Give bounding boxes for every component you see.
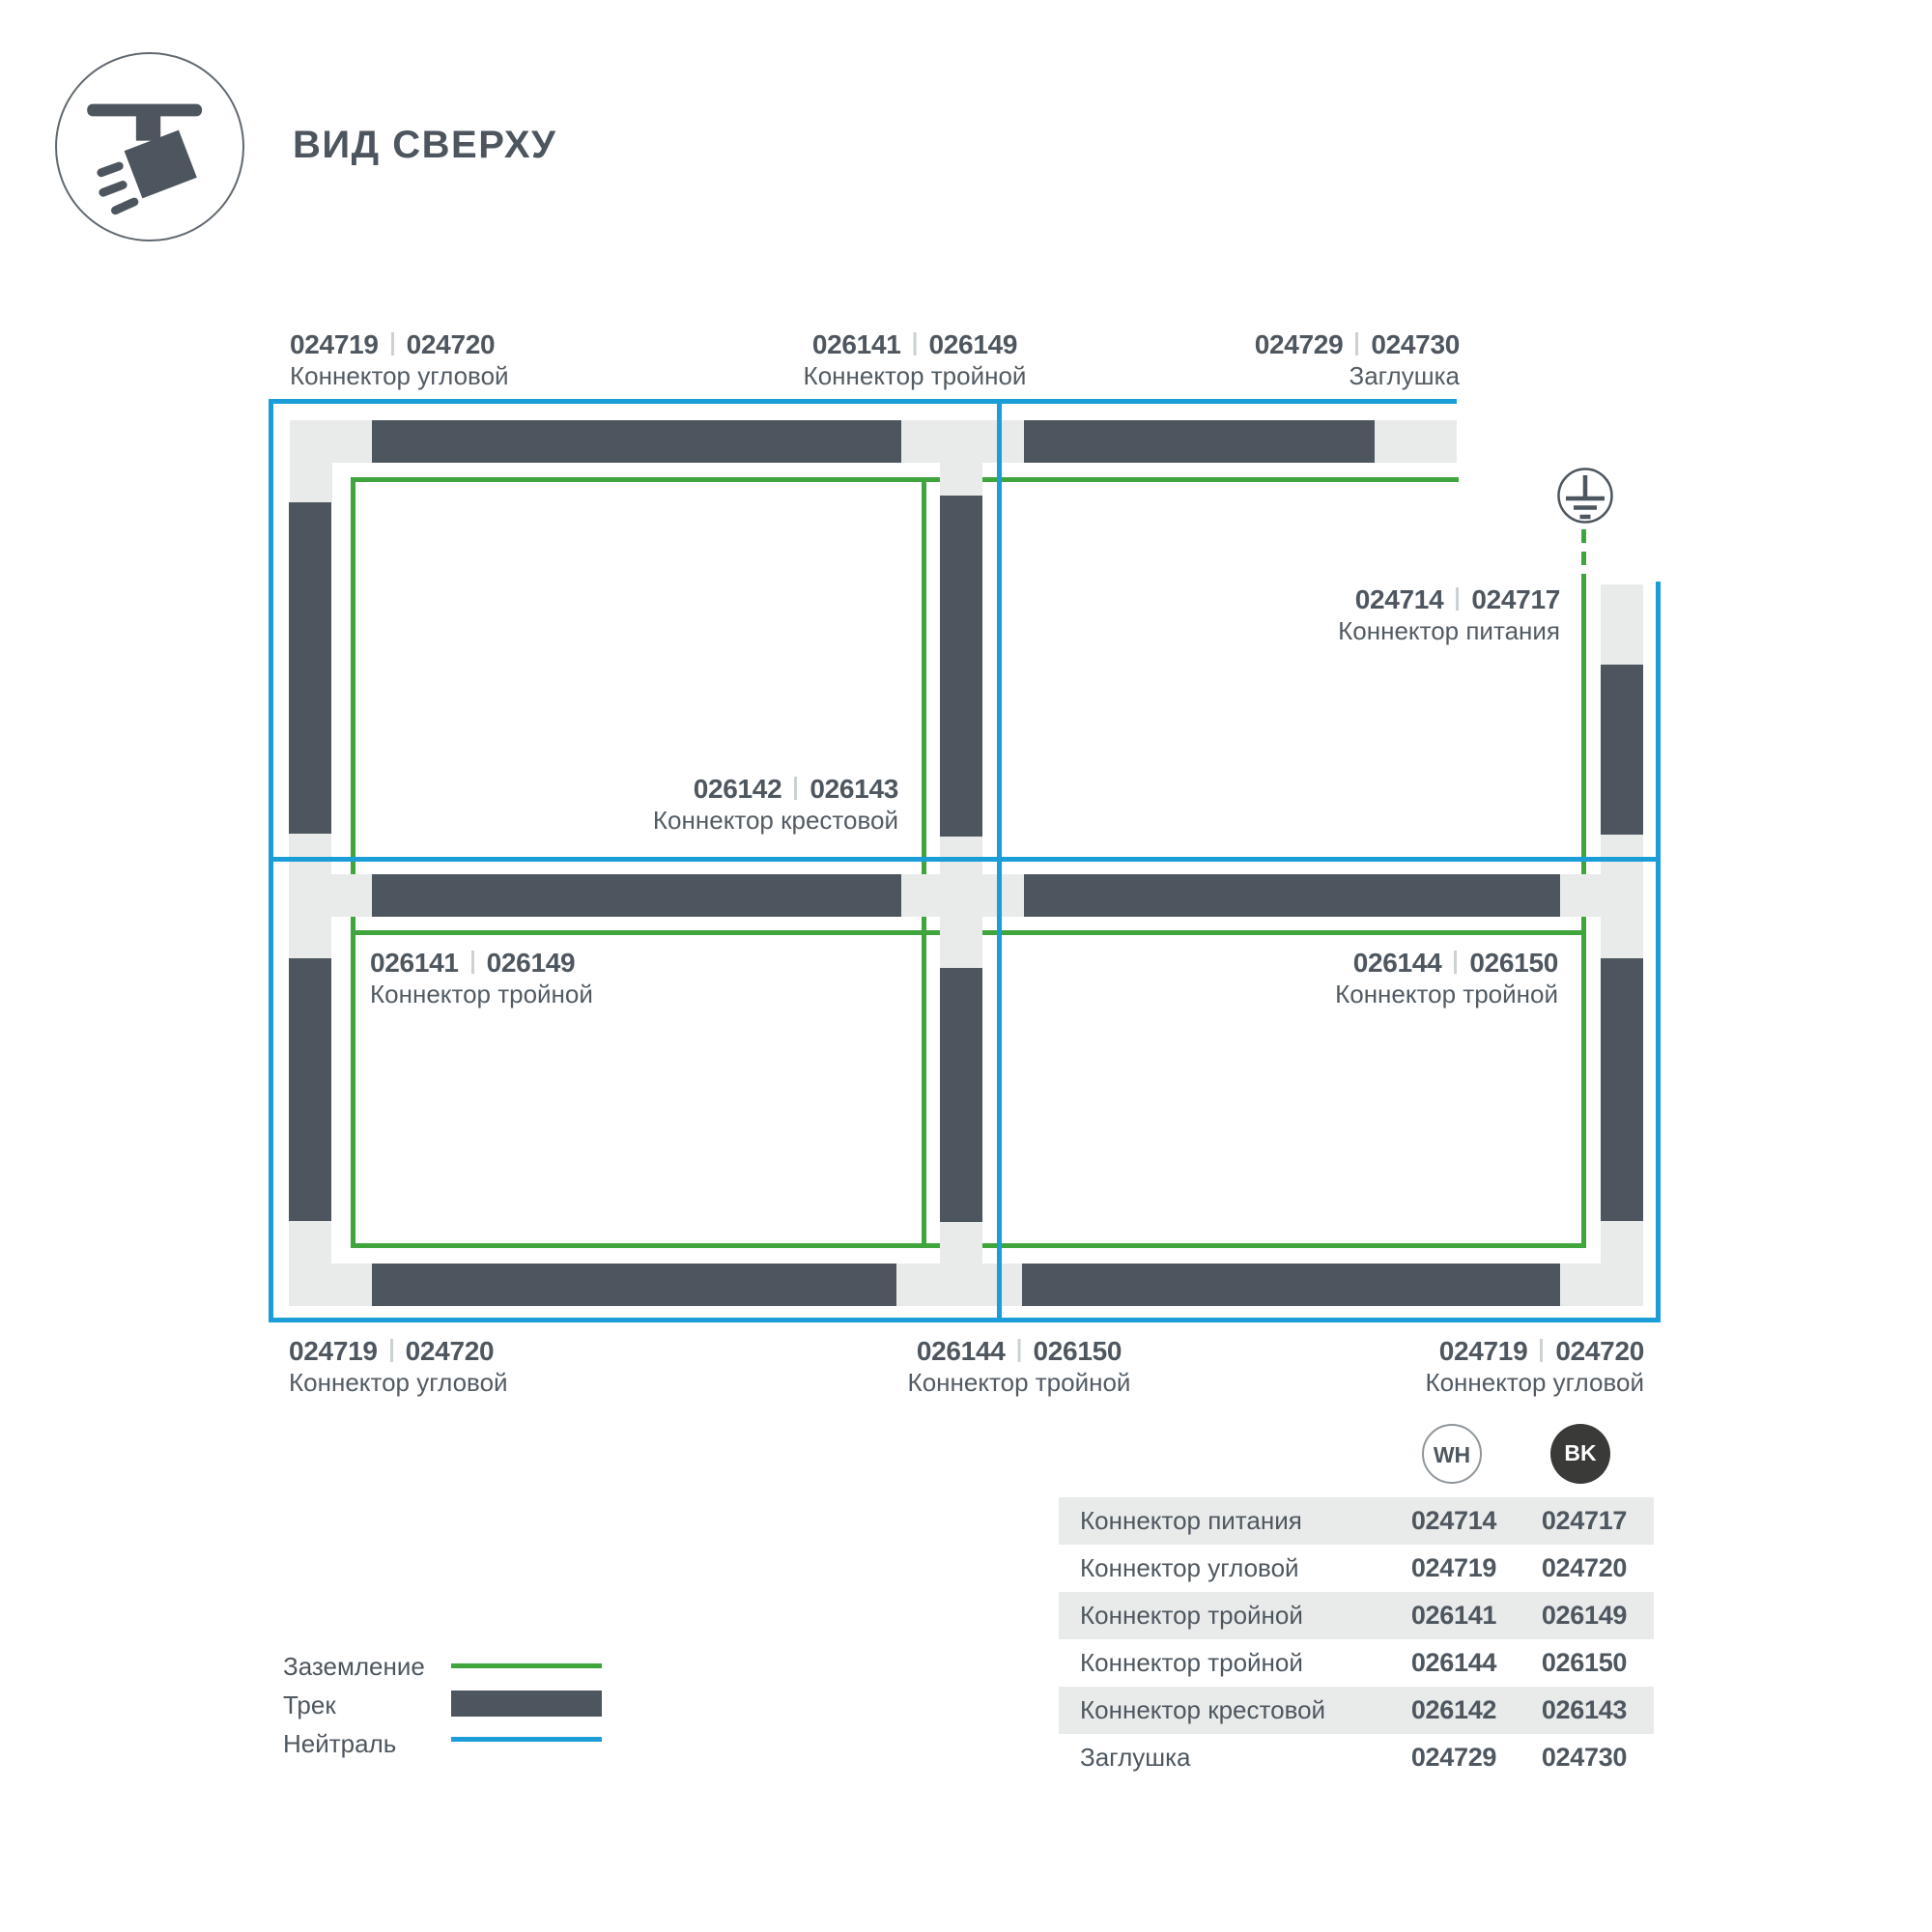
- divider: [471, 951, 474, 974]
- track-segment: [372, 874, 901, 917]
- connector-tee-left: [289, 834, 331, 958]
- part-number-bk: 026150: [1034, 1336, 1122, 1366]
- table-cell-wh: 026141: [1386, 1592, 1521, 1639]
- order-table: Коннектор питания 024714 024717 Коннекто…: [1059, 1497, 1654, 1781]
- part-name: Заглушка: [1255, 360, 1460, 392]
- connector-corner-top-left: [290, 420, 332, 502]
- connector-power-feed: [1601, 584, 1643, 665]
- ground-line-dashed: [1581, 529, 1586, 582]
- table-row: Коннектор питания 024714 024717: [1059, 1497, 1654, 1545]
- table-cell-name: Коннектор питания: [1080, 1497, 1302, 1545]
- table-cell-bk: 026149: [1517, 1592, 1652, 1639]
- earth-ground-icon: [1556, 467, 1614, 525]
- legend-swatch-ground: [451, 1663, 602, 1668]
- connector-tee-top: [940, 463, 982, 496]
- table-row: Коннектор тройной 026144 026150: [1059, 1639, 1654, 1687]
- label-tee-mid-left: 026141026149 Коннектор тройной: [370, 947, 593, 1010]
- track-segment: [1601, 665, 1643, 835]
- neutral-line-top: [269, 399, 1457, 404]
- table-cell-name: Коннектор крестовой: [1080, 1687, 1325, 1734]
- part-number-wh: 026141: [812, 329, 901, 359]
- part-number-wh: 026144: [917, 1336, 1006, 1366]
- label-corner-top-left: 024719024720 Коннектор угловой: [290, 328, 509, 392]
- color-badge-white: WH: [1422, 1424, 1482, 1484]
- part-name: Коннектор питания: [1338, 615, 1560, 647]
- part-number-wh: 024714: [1355, 584, 1444, 614]
- neutral-line-left: [269, 399, 273, 1322]
- track-segment: [1024, 420, 1375, 463]
- track-segment: [289, 502, 331, 834]
- divider: [1456, 587, 1459, 611]
- label-cross: 026142026143 Коннектор крестовой: [653, 773, 898, 837]
- part-name: Коннектор крестовой: [653, 805, 898, 837]
- table-cell-bk: 026150: [1517, 1639, 1652, 1687]
- label-tee-top: 026141026149 Коннектор тройной: [804, 328, 1027, 392]
- ground-line-center: [922, 477, 926, 1248]
- part-name: Коннектор тройной: [804, 360, 1027, 392]
- part-name: Коннектор тройной: [1335, 979, 1558, 1010]
- table-cell-bk: 024730: [1517, 1734, 1652, 1781]
- connector-tee-left: [331, 874, 372, 917]
- part-number-bk: 024717: [1471, 584, 1560, 614]
- legend-label-ground: Заземление: [283, 1652, 425, 1681]
- track-segment: [372, 1264, 896, 1306]
- ground-line-left: [351, 477, 355, 1248]
- divider: [914, 332, 917, 355]
- table-cell-bk: 024720: [1517, 1545, 1652, 1592]
- track-segment: [1022, 1264, 1560, 1306]
- table-cell-name: Коннектор угловой: [1080, 1545, 1299, 1592]
- part-name: Коннектор тройной: [908, 1367, 1131, 1399]
- divider: [1540, 1339, 1543, 1362]
- divider: [390, 1339, 393, 1362]
- table-cell-name: Заглушка: [1080, 1734, 1191, 1781]
- track-segment: [1024, 874, 1560, 917]
- label-endcap: 024729024730 Заглушка: [1255, 328, 1460, 392]
- color-badge-black: BK: [1550, 1424, 1610, 1484]
- part-name: Коннектор угловой: [290, 360, 509, 392]
- connector-tee-bottom: [896, 1264, 1022, 1306]
- connector-corner-bottom-right: [1560, 1264, 1643, 1306]
- connector-tee-top: [901, 420, 1024, 463]
- table-cell-wh: 024714: [1386, 1497, 1521, 1545]
- part-number-bk: 024720: [1555, 1336, 1644, 1366]
- divider: [1454, 951, 1457, 974]
- table-cell-wh: 026142: [1386, 1687, 1521, 1734]
- neutral-line-middle: [269, 857, 1661, 862]
- part-number-bk: 024730: [1371, 329, 1460, 359]
- connector-cross-center: [901, 874, 1024, 917]
- track-segment: [940, 496, 982, 837]
- part-number-bk: 026143: [810, 774, 898, 804]
- table-cell-wh: 026144: [1386, 1639, 1521, 1687]
- divider: [794, 777, 797, 800]
- part-number-bk: 024720: [407, 329, 496, 359]
- connector-tee-right: [1560, 874, 1601, 917]
- legend-label-neutral: Нейтраль: [283, 1729, 396, 1758]
- part-number-bk: 024720: [406, 1336, 495, 1366]
- neutral-line-center: [997, 399, 1002, 1322]
- ground-line-top: [351, 477, 1459, 482]
- track-segment: [372, 420, 901, 463]
- label-corner-bottom-left: 024719024720 Коннектор угловой: [289, 1335, 508, 1399]
- table-cell-wh: 024719: [1386, 1545, 1521, 1592]
- track-segment: [289, 958, 331, 1221]
- table-cell-bk: 026143: [1517, 1687, 1652, 1734]
- part-name: Коннектор угловой: [1425, 1367, 1644, 1399]
- part-number-wh: 024729: [1255, 329, 1344, 359]
- table-cell-wh: 024729: [1386, 1734, 1521, 1781]
- neutral-line-bottom: [269, 1318, 1661, 1322]
- connector-corner-bottom-left: [289, 1264, 372, 1306]
- part-number-bk: 026149: [929, 329, 1018, 359]
- table-row: Коннектор угловой 024719 024720: [1059, 1545, 1654, 1592]
- divider: [1355, 332, 1358, 355]
- part-number-wh: 026142: [694, 774, 782, 804]
- track-spotlight-icon: [55, 52, 244, 241]
- part-number-bk: 026149: [487, 948, 576, 978]
- track-segment: [1601, 958, 1643, 1222]
- label-corner-bottom-right: 024719024720 Коннектор угловой: [1425, 1335, 1644, 1399]
- divider: [1018, 1339, 1021, 1362]
- part-number-wh: 024719: [289, 1336, 378, 1366]
- track-segment: [940, 968, 982, 1222]
- part-number-bk: 026150: [1469, 948, 1558, 978]
- part-number-wh: 026141: [370, 948, 459, 978]
- part-name: Коннектор угловой: [289, 1367, 508, 1399]
- label-tee-bottom: 026144026150 Коннектор тройной: [908, 1335, 1131, 1399]
- part-number-wh: 024719: [290, 329, 379, 359]
- table-cell-bk: 024717: [1517, 1497, 1652, 1545]
- label-power-feed: 024714024717 Коннектор питания: [1338, 583, 1560, 647]
- table-row: Коннектор тройной 026141 026149: [1059, 1592, 1654, 1639]
- part-number-wh: 026144: [1353, 948, 1442, 978]
- neutral-line-right: [1656, 582, 1661, 1322]
- page: ВИД СВЕРХУ: [0, 0, 1932, 1932]
- legend-swatch-neutral: [451, 1737, 602, 1742]
- divider: [391, 332, 394, 355]
- table-row: Заглушка 024729 024730: [1059, 1734, 1654, 1781]
- legend-label-track: Трек: [283, 1690, 336, 1719]
- part-name: Коннектор тройной: [370, 979, 593, 1010]
- legend-swatch-track: [451, 1690, 602, 1717]
- table-cell-name: Коннектор тройной: [1080, 1639, 1303, 1687]
- table-cell-name: Коннектор тройной: [1080, 1592, 1303, 1639]
- part-number-wh: 024719: [1439, 1336, 1528, 1366]
- connector-endcap: [1375, 420, 1457, 463]
- page-title: ВИД СВЕРХУ: [293, 124, 556, 167]
- connector-tee-right: [1601, 835, 1643, 958]
- label-tee-mid-right: 026144026150 Коннектор тройной: [1335, 947, 1558, 1010]
- table-row: Коннектор крестовой 026142 026143: [1059, 1687, 1654, 1734]
